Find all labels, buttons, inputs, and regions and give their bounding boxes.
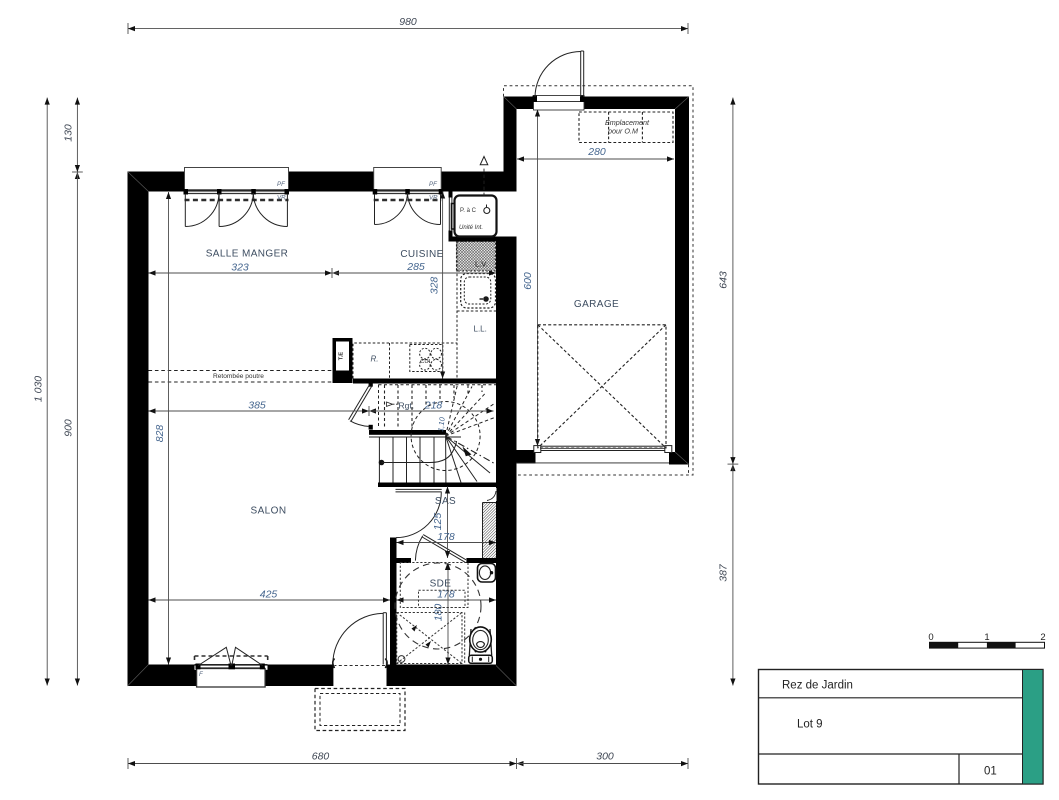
svg-text:1: 1: [984, 632, 989, 643]
svg-text:425: 425: [260, 589, 278, 601]
svg-text:CUISINE: CUISINE: [400, 249, 443, 260]
svg-text:VR: VR: [277, 195, 286, 202]
svg-text:R.: R.: [371, 355, 379, 364]
svg-text:PF: PF: [277, 181, 286, 188]
svg-text:Lot 9: Lot 9: [797, 719, 823, 731]
svg-text:828: 828: [154, 425, 166, 443]
svg-text:1 030: 1 030: [33, 376, 45, 402]
svg-text:328: 328: [428, 277, 440, 295]
svg-text:218: 218: [424, 400, 443, 412]
svg-text:L.L.: L.L.: [474, 325, 487, 334]
svg-text:Retombée poutre: Retombée poutre: [213, 373, 264, 380]
svg-text:P. à C: P. à C: [460, 208, 477, 214]
svg-text:125: 125: [432, 513, 444, 531]
svg-text:Unité Int.: Unité Int.: [459, 225, 483, 231]
svg-text:pour O.M: pour O.M: [607, 127, 638, 136]
svg-text:385: 385: [248, 400, 266, 412]
svg-text:285: 285: [406, 261, 425, 273]
svg-text:L.V.: L.V.: [475, 260, 488, 269]
svg-text:2: 2: [1040, 632, 1045, 643]
svg-text:680: 680: [312, 751, 330, 763]
svg-text:130: 130: [63, 124, 75, 142]
svg-text:323: 323: [231, 262, 249, 274]
svg-text:0: 0: [928, 632, 933, 643]
svg-text:600: 600: [522, 272, 534, 290]
svg-text:SALON: SALON: [251, 506, 287, 517]
svg-text:643: 643: [718, 271, 730, 289]
svg-text:T.E: T.E: [339, 352, 345, 361]
svg-text:387: 387: [718, 563, 730, 582]
svg-text:178: 178: [437, 531, 455, 543]
svg-text:900: 900: [63, 419, 75, 437]
svg-text:SAS: SAS: [435, 496, 456, 507]
svg-text:1,10: 1,10: [436, 416, 447, 432]
svg-text:01: 01: [984, 766, 997, 778]
svg-text:300: 300: [596, 751, 614, 763]
svg-text:280: 280: [587, 146, 606, 158]
svg-text:PF: PF: [429, 181, 438, 188]
svg-text:980: 980: [399, 16, 417, 28]
svg-text:Rez de Jardin: Rez de Jardin: [782, 680, 853, 692]
svg-text:Rgt.: Rgt.: [399, 401, 415, 411]
svg-text:CUI.: CUI.: [420, 359, 432, 365]
svg-text:SALLE MANGER: SALLE MANGER: [206, 249, 289, 260]
svg-text:GARAGE: GARAGE: [574, 299, 619, 310]
svg-text:VR: VR: [429, 195, 438, 202]
